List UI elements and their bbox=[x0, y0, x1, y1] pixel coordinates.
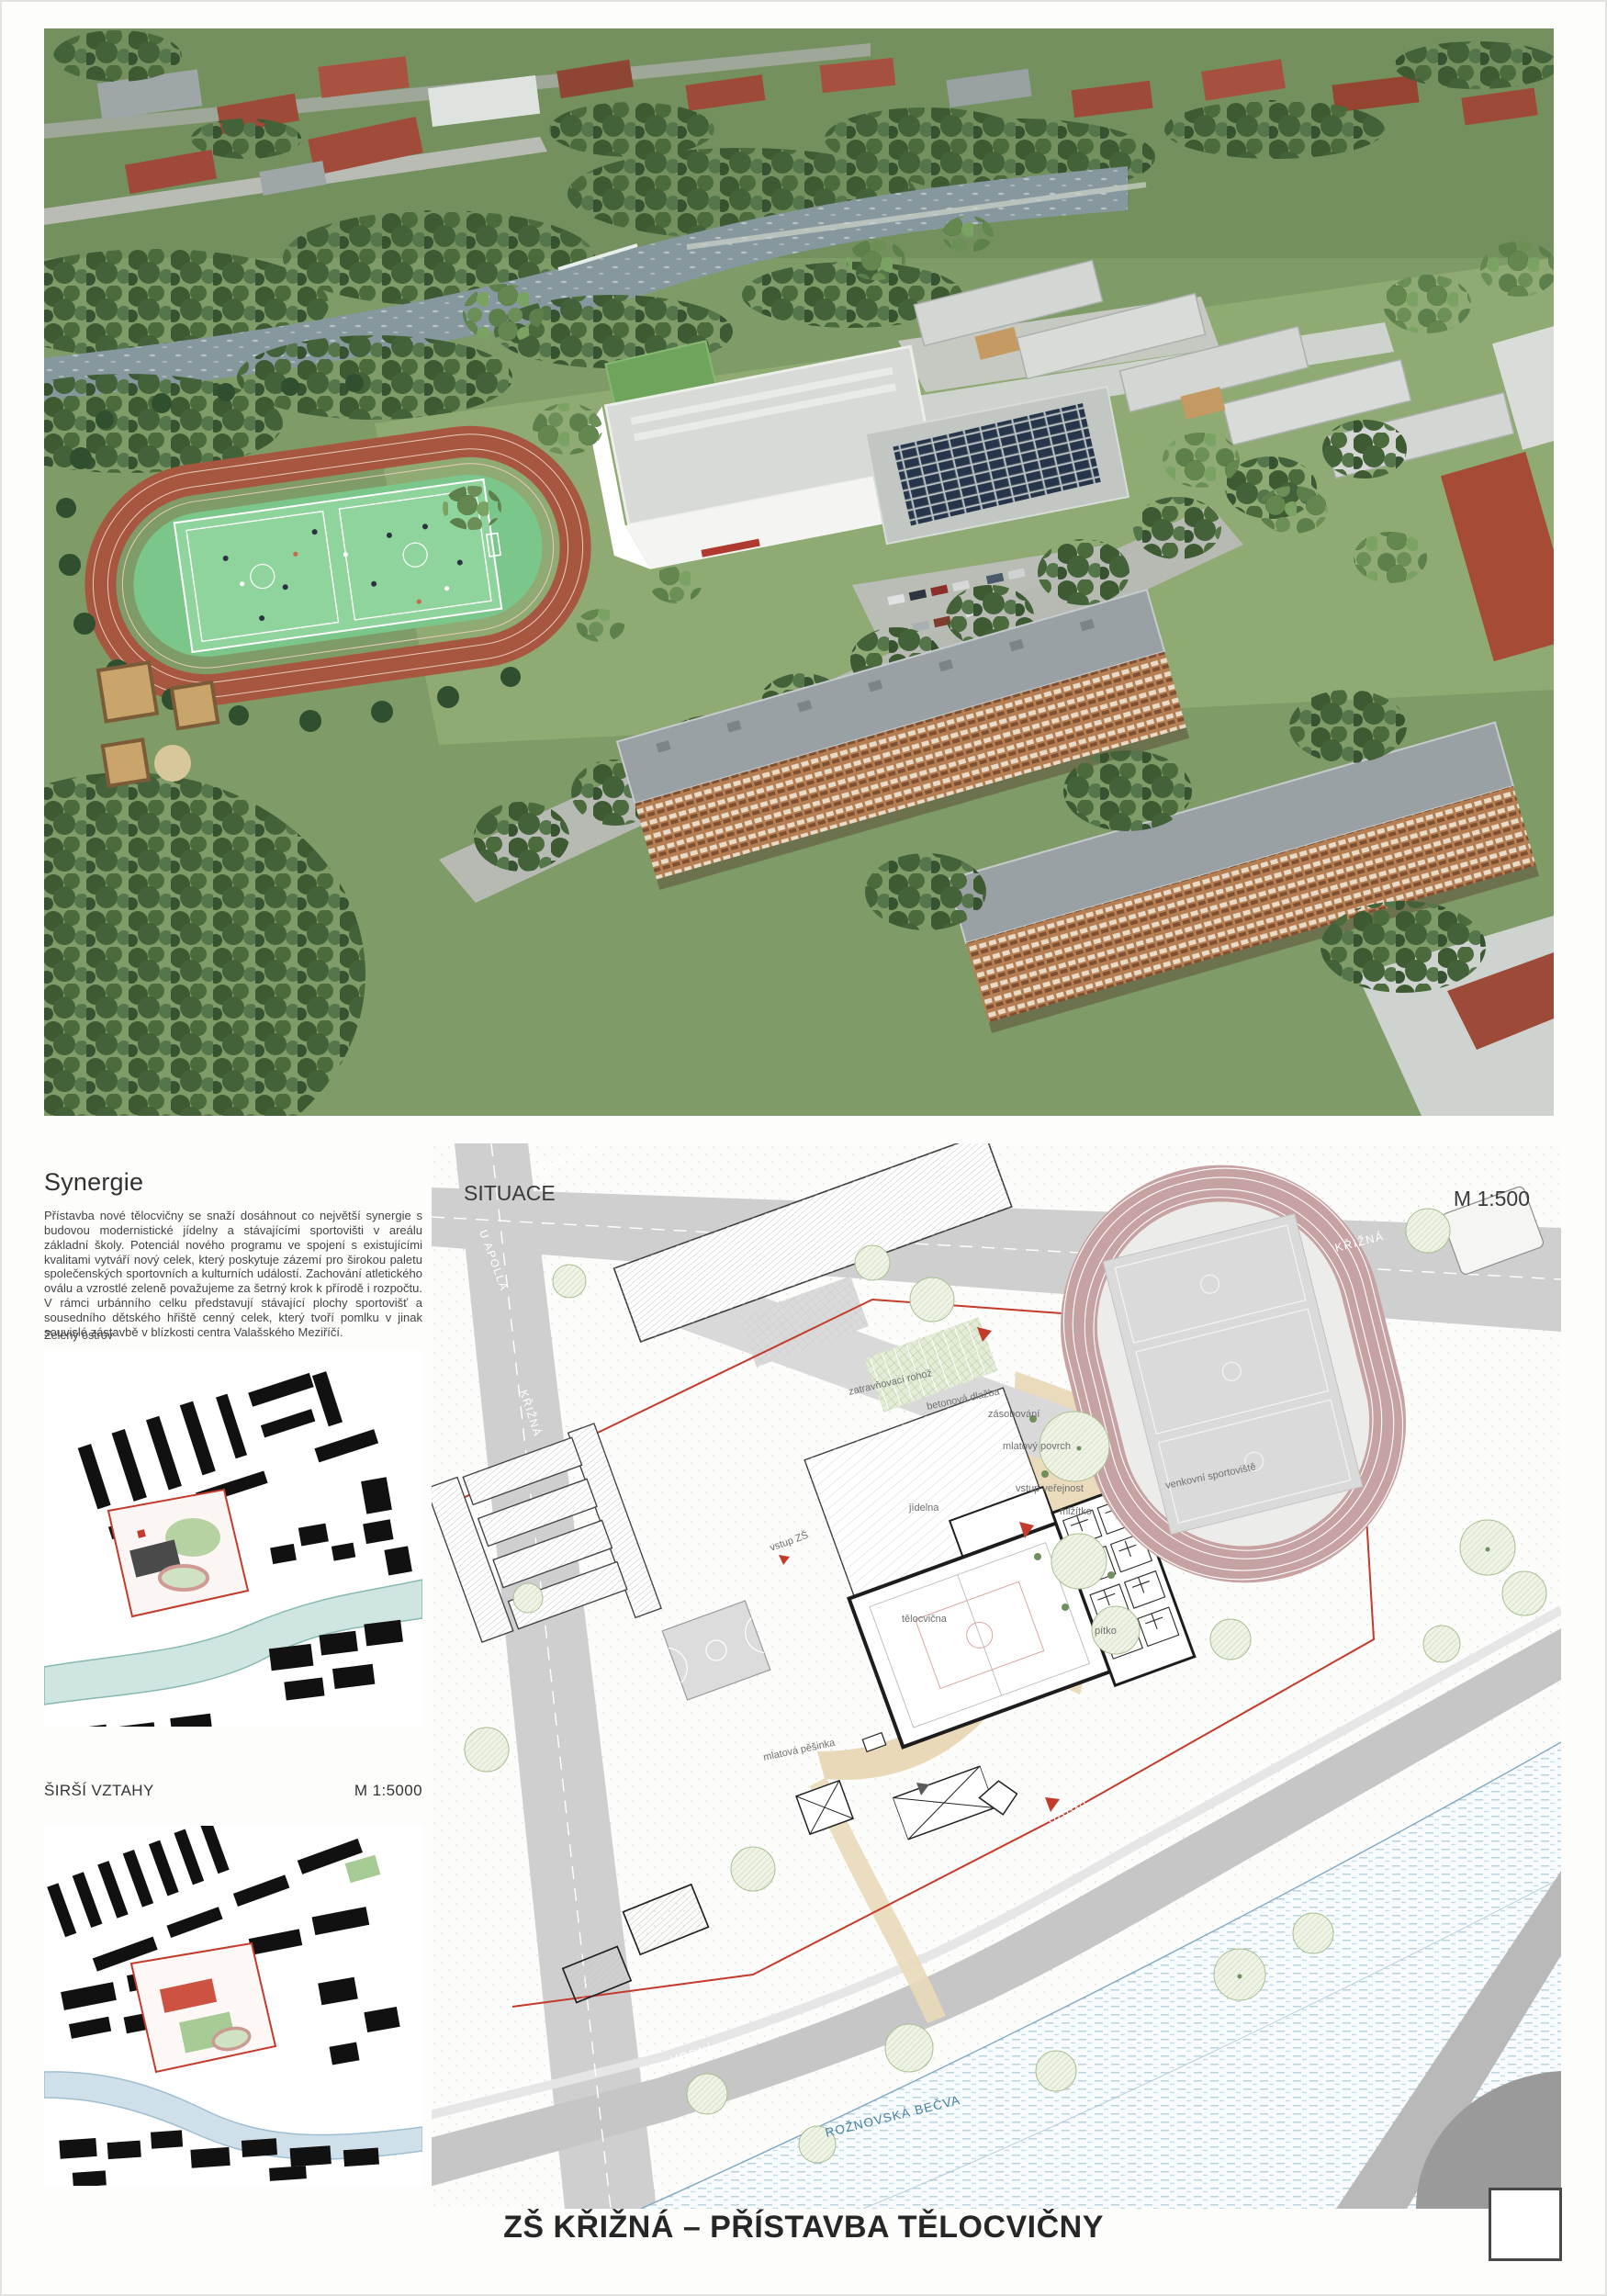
synergy-paragraph: Přístavba nové tělocvičny se snaží dosáh… bbox=[44, 1209, 422, 1340]
stamp-box bbox=[1489, 2188, 1562, 2261]
wider-relations-scale: M 1:5000 bbox=[354, 1782, 422, 1800]
figure-ground-map-green-island bbox=[44, 1350, 422, 1727]
wider-relations-label: ŠIRŠÍ VZTAHY bbox=[44, 1782, 154, 1800]
annotation-jidelna: jídelna bbox=[908, 1503, 939, 1514]
synergy-heading: Synergie bbox=[44, 1168, 422, 1197]
situace-label: SITUACE bbox=[464, 1181, 556, 1205]
aerial-render-svg bbox=[44, 28, 1554, 1116]
aerial-render bbox=[44, 28, 1554, 1116]
figure-ground-map-wider bbox=[44, 1826, 422, 2186]
poster-title: ZŠ KŘIŽNÁ – PŘÍSTAVBA TĚLOCVIČNY bbox=[0, 2210, 1607, 2245]
wider-relations-row: ŠIRŠÍ VZTAHY M 1:5000 bbox=[44, 1782, 422, 1800]
annotation-vstup-verejnost: vstup veřejnost bbox=[1016, 1483, 1084, 1494]
annotation-mlzitko: mlžítko bbox=[1060, 1506, 1092, 1517]
plan-scale-label: M 1:500 bbox=[1454, 1187, 1530, 1210]
annotation-mlatovy-povrch: mlatový povrch bbox=[1003, 1441, 1071, 1452]
annotation-zasobovani: zásobování bbox=[988, 1409, 1039, 1420]
synergy-section: Synergie Přístavba nové tělocvičny se sn… bbox=[44, 1168, 422, 1340]
presentation-board: Synergie Přístavba nové tělocvičny se sn… bbox=[0, 0, 1607, 2296]
annotation-pitko: pítko bbox=[1095, 1626, 1117, 1637]
annotation-telocvicna: tělocvična bbox=[902, 1614, 948, 1625]
green-island-label: Zelený ostrov bbox=[44, 1329, 113, 1342]
site-plan: SITUACE M 1:500 BRATŘÍ Č. U APOLLA KŘIŽN… bbox=[432, 1143, 1561, 2209]
